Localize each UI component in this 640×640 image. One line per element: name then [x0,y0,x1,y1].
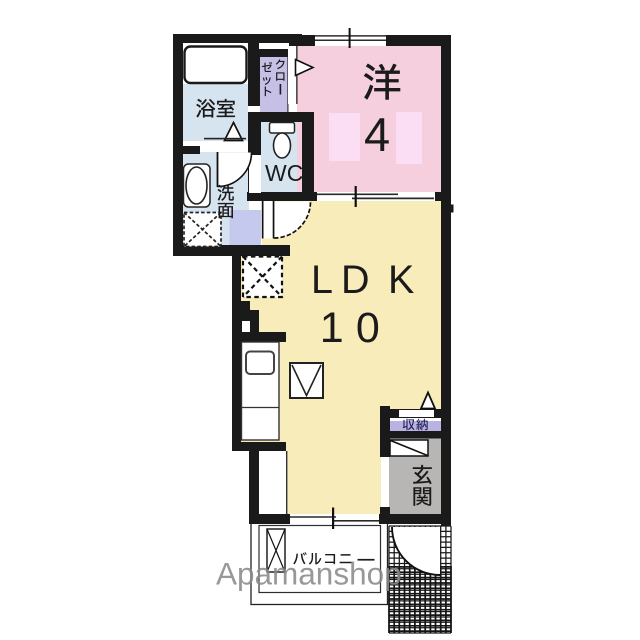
svg-text:K: K [388,258,414,302]
svg-text:Apamanshop: Apamanshop [216,555,402,591]
svg-text:4: 4 [364,108,390,161]
svg-text:WC: WC [265,160,303,186]
svg-text:1: 1 [320,304,344,352]
svg-text:D: D [341,258,370,302]
svg-text:0: 0 [356,304,380,352]
svg-text:L: L [311,258,333,302]
